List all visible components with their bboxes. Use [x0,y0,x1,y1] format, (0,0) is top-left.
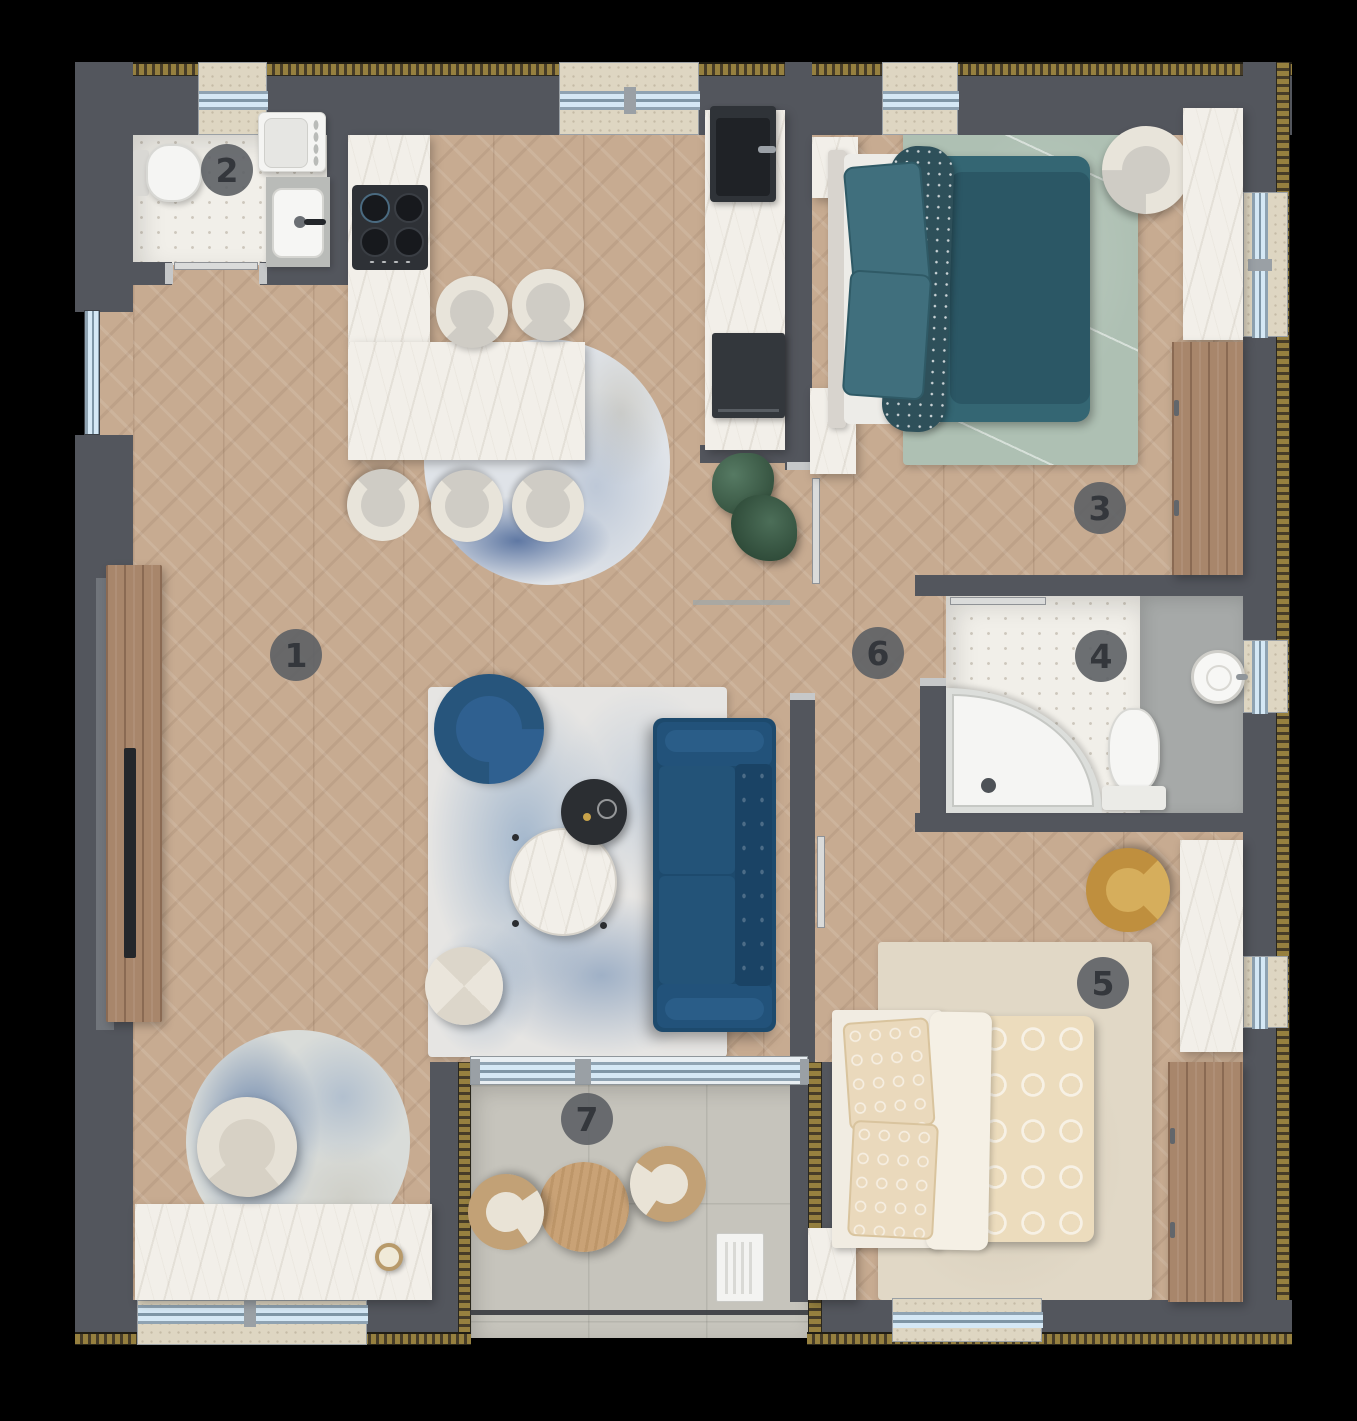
room-number: 6 [867,634,890,673]
bed3-pillow [842,269,933,400]
hob-knobs [366,259,416,265]
dining-chair [512,269,584,341]
window-bathroom4-right [1243,640,1288,713]
oven-handle [718,409,779,412]
jamb-bath4 [920,678,946,686]
bedroom3-wardrobe [1172,342,1243,575]
kitchen-island-table [348,342,585,460]
wall-right-1 [1243,62,1276,192]
floor-plan: 1 2 3 4 5 6 7 [0,0,1357,1421]
room-badge-7: 7 [561,1093,613,1145]
wall-bath2-bottom-a [75,262,172,285]
wall-kitchen-bed3 [785,62,812,470]
toilet-tank [1102,786,1166,810]
tv-icon [124,748,136,958]
window-bedroom3-right [1243,192,1288,337]
jamb-bed3 [787,462,812,470]
window-mullion [624,87,636,114]
jamb-bed5 [790,693,815,700]
coffee-table-leg [512,920,519,927]
ac-vents [725,1242,755,1294]
door-mullion-a [575,1059,591,1084]
wall-right-2 [1243,337,1276,640]
wardrobe-handle [1174,400,1179,416]
window-bedroom3-top [882,62,958,135]
bathroom4-gray-floor [1140,596,1243,813]
side-table-decor [597,799,617,819]
burner [394,193,424,223]
window-bedroom5-bottom [892,1298,1042,1342]
toilet-bowl [1108,708,1160,792]
door-bathroom4 [950,597,1046,605]
dining-chair [512,470,584,542]
basin-inner-ring [1206,665,1232,691]
window-glass [471,1062,809,1081]
ac-unit-icon [716,1233,764,1302]
room-badge-5: 5 [1077,957,1129,1009]
room-number: 7 [576,1100,599,1139]
bedroom5-wardrobe [1168,1062,1243,1302]
balcony-glass-door [470,1056,808,1085]
dining-chair [436,276,508,348]
coffee-table-leg [512,834,519,841]
side-table-decor [583,813,591,821]
room-badge-6: 6 [852,627,904,679]
room-badge-2: 2 [201,144,253,196]
room-badge-3: 3 [1074,482,1126,534]
pouf [425,947,503,1025]
burner [360,227,390,257]
room-number: 3 [1089,489,1112,528]
sofa-backrest [735,764,772,986]
room-badge-4: 4 [1075,630,1127,682]
room-number: 5 [1092,964,1115,1003]
window-glass [883,91,959,110]
bed5-pillow [842,1017,935,1131]
basin-faucet [1236,674,1248,680]
sofa-bolster [665,730,764,752]
navy-sofa [653,718,776,1032]
window-living-left [84,310,100,435]
balcony-wall-left [430,1062,458,1332]
built-in-oven-icon [712,333,785,418]
shower-drain [981,778,996,793]
mustard-armchair [1086,848,1170,932]
balcony-insulation-left [458,1062,471,1332]
dining-chair [347,469,419,541]
window-glass [893,1312,1043,1328]
window-mullion [1248,259,1272,271]
jamb-bath2-a [165,263,173,284]
burner [394,227,424,257]
basin-faucet [304,219,326,225]
sink-faucet [758,146,776,153]
insulation-bottom-right [807,1332,1292,1345]
coffee-table-leg [600,922,607,929]
sink-basin [716,118,770,196]
room-badge-1: 1 [270,629,322,681]
bed3-blanket [950,172,1090,404]
wardrobe-handle [1170,1128,1175,1144]
door-bedroom3 [812,478,820,584]
wall-bath4-bottom [915,813,1243,832]
wall-bed3-bottom [915,575,1243,596]
window-living-bottom [137,1300,367,1345]
machine-drum [264,118,308,168]
door-bedroom5 [817,836,825,928]
bed5-pillow [847,1120,939,1240]
bedroom5-dresser-marble [1180,840,1243,1052]
dining-chair [431,470,503,542]
wall-right-4 [1243,1028,1276,1332]
burner [360,193,390,223]
window-glass [199,91,268,110]
wardrobe-handle [1174,500,1179,516]
sofa-seat-cushion [659,876,735,984]
bedroom3-dresser-marble [1183,108,1243,340]
door-mullion-b [471,1059,480,1084]
sofa-bolster [665,998,764,1020]
side-table-black [561,779,627,845]
sofa-seat-cushion [659,766,735,874]
window-bathroom2 [198,62,267,135]
window-bedroom5-right [1243,956,1288,1028]
window-glass [1252,641,1268,714]
room-number: 2 [216,151,239,190]
window-kitchen [559,62,699,135]
room-number: 1 [285,636,308,675]
window-glass [1252,957,1268,1029]
room-number: 4 [1090,637,1113,676]
wardrobe-handle [1170,1222,1175,1238]
candle-icon [375,1243,403,1271]
window-mullion [244,1301,256,1327]
washing-machine-icon [258,112,326,172]
hallway-threshold [693,600,790,605]
kitchen-sink-icon [710,106,776,202]
balcony-glass-railing [470,1310,808,1315]
door-mullion-c [800,1059,809,1084]
wall-right-3 [1243,713,1276,956]
machine-knobs [313,119,319,167]
door-bathroom2 [174,262,258,270]
gas-hob-icon [352,185,428,270]
balcony-table-wood [539,1162,629,1252]
toilet-bowl [146,144,202,202]
wood-floor-left-window-patch [96,310,133,435]
wall-bath4-left [920,686,946,832]
